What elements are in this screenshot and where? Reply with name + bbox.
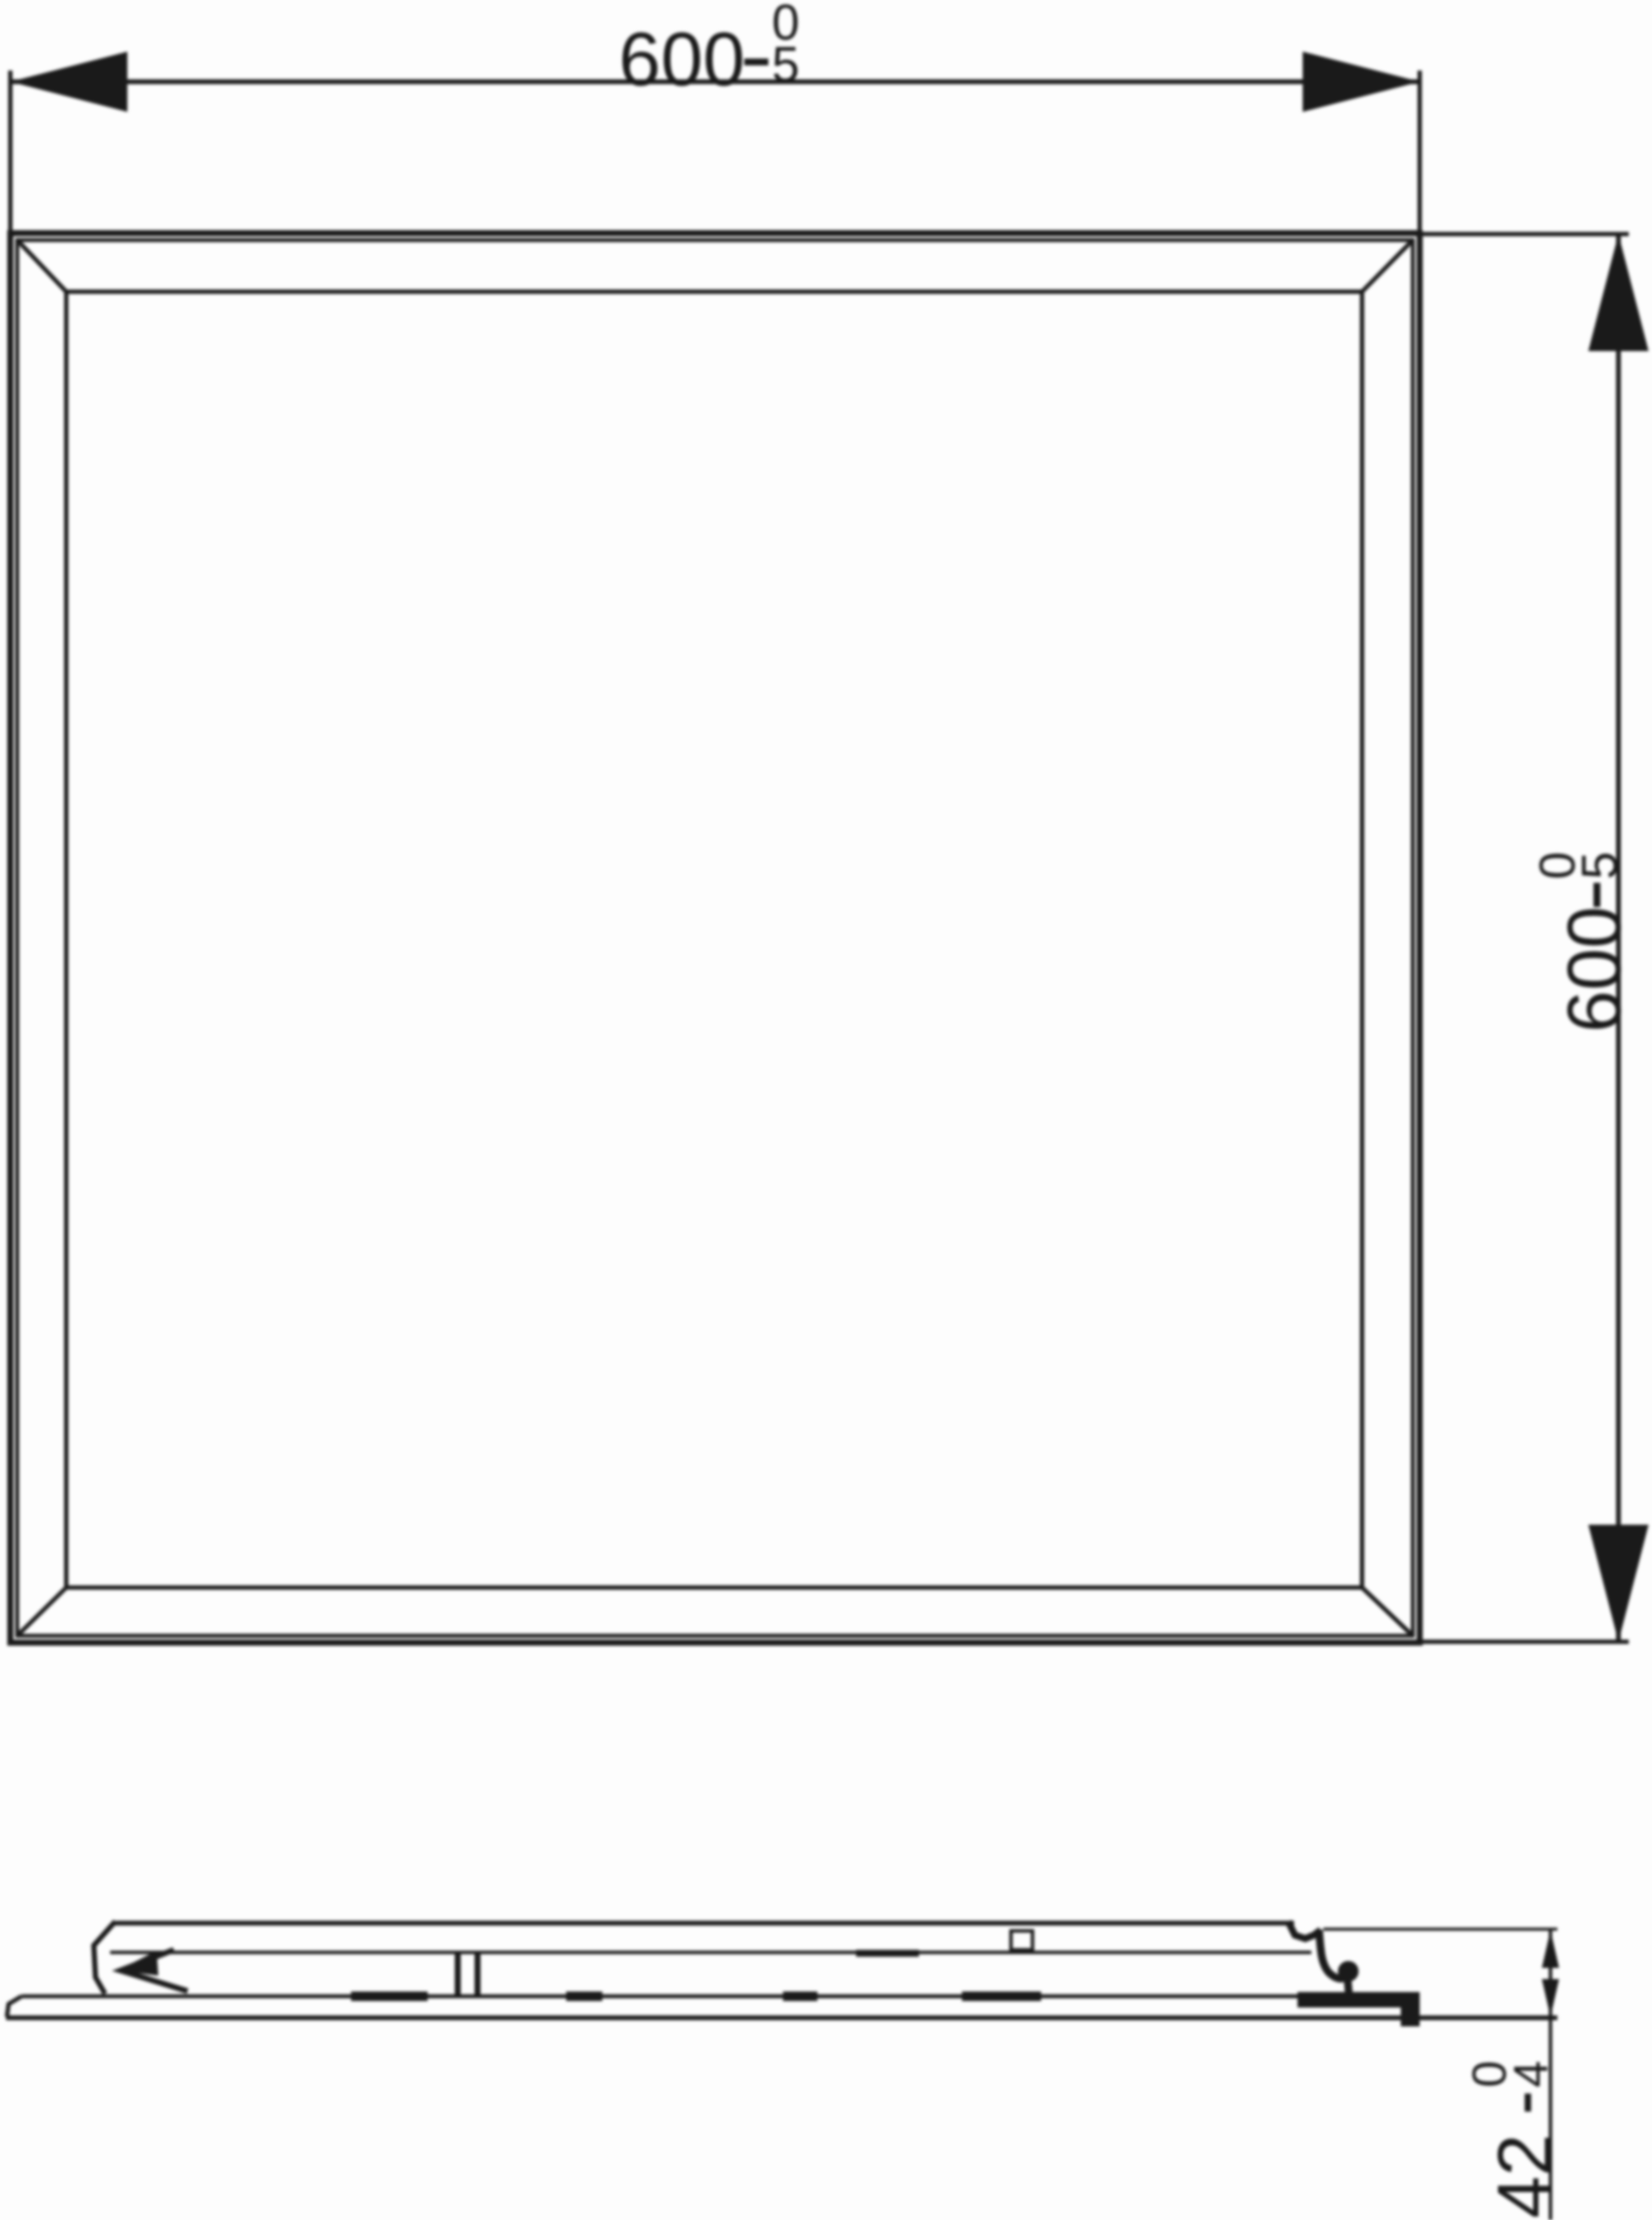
svg-text:0: 0 <box>1462 2061 1516 2087</box>
svg-text:42: 42 <box>1482 2134 1567 2218</box>
svg-text:600: 600 <box>1551 906 1637 1033</box>
svg-text:0: 0 <box>1530 852 1586 879</box>
svg-text:0: 0 <box>772 0 799 51</box>
svg-text:600: 600 <box>619 16 745 102</box>
